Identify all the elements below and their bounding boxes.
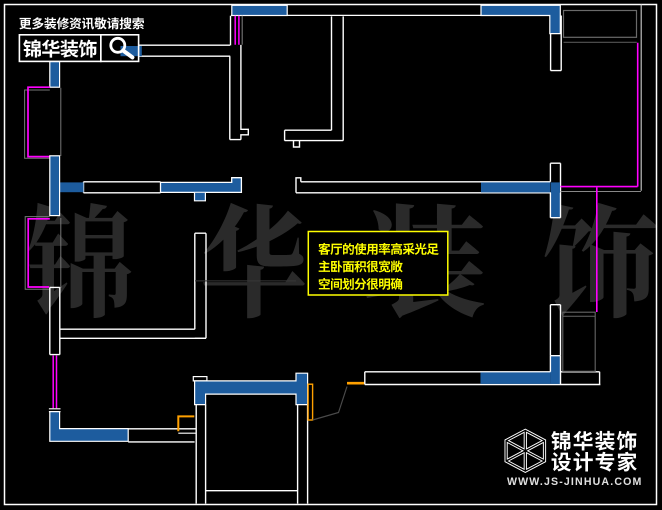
svg-text:WWW.JS-JINHUA.COM: WWW.JS-JINHUA.COM — [507, 476, 643, 488]
